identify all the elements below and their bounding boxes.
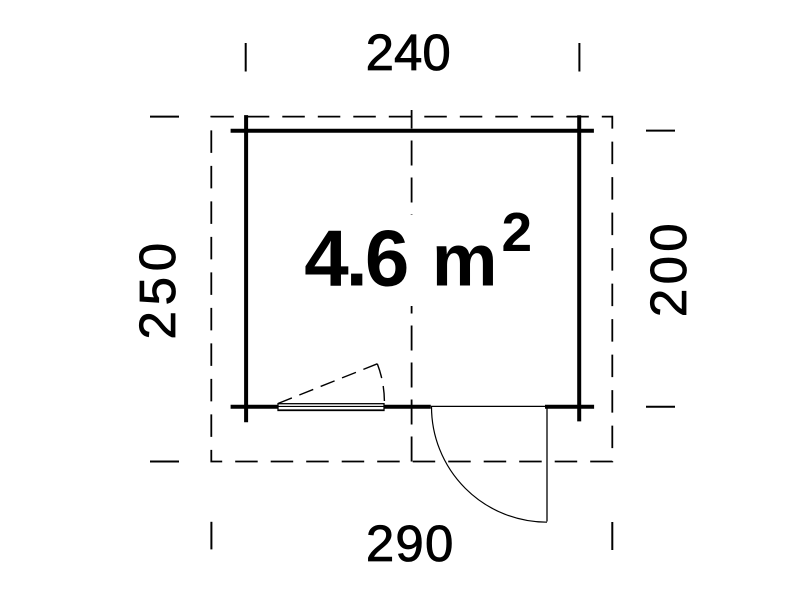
svg-text:250: 250 [129, 237, 186, 340]
svg-text:2: 2 [502, 201, 533, 263]
svg-text:240: 240 [366, 24, 451, 81]
svg-text:290: 290 [366, 515, 455, 572]
svg-text:4.6: 4.6 [304, 214, 407, 303]
svg-text:200: 200 [640, 219, 697, 317]
svg-text:m: m [432, 219, 498, 302]
